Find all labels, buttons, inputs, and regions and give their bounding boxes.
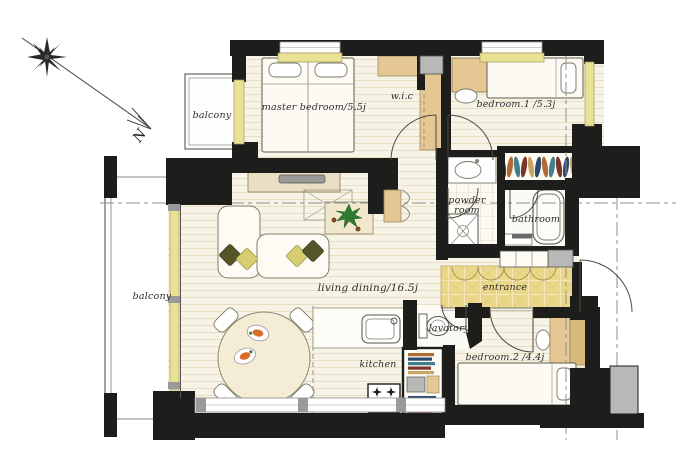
- floor-plan: N balcony balcony master bedroom/5.5j w.…: [0, 0, 676, 455]
- chair: [536, 330, 550, 350]
- compass-star: [27, 37, 67, 77]
- label-powder-room-2: room: [454, 205, 480, 216]
- label-living-dining: living dining/16.5j: [318, 282, 419, 294]
- bedroom1-furniture: [452, 58, 583, 103]
- label-bathroom: bathroom: [512, 214, 560, 225]
- window-sill: [278, 53, 342, 62]
- washbasin: [455, 162, 481, 179]
- dining-set: [212, 306, 316, 410]
- desk: [550, 315, 570, 365]
- label-balcony-left: balcony: [133, 291, 172, 302]
- desk: [452, 58, 490, 92]
- hall-cabinet: [500, 251, 548, 267]
- label-bedroom1: bedroom.1 /5.3j: [476, 99, 555, 110]
- compass: N: [22, 37, 151, 146]
- label-lavatory: lavatory: [429, 323, 470, 334]
- storage-pillar: [384, 190, 401, 222]
- pipe-shaft: [610, 366, 638, 414]
- sofa-chaise: [218, 206, 260, 278]
- window-sill: [480, 53, 544, 62]
- label-wic: w.i.c: [391, 91, 414, 102]
- label-kitchen: kitchen: [359, 359, 396, 370]
- chair: [455, 89, 477, 103]
- pillow: [315, 63, 347, 77]
- label-balcony-top: balcony: [193, 110, 232, 121]
- outside-area: [579, 198, 676, 310]
- pillow: [269, 63, 301, 77]
- north-label: N: [129, 126, 150, 147]
- label-bedroom2: bedroom.2 /4.4j: [465, 352, 544, 363]
- window-sill: [585, 62, 594, 126]
- label-entrance: entrance: [483, 282, 528, 293]
- window-sill: [234, 80, 244, 144]
- pillow: [557, 368, 571, 400]
- utility-box: [420, 56, 443, 74]
- tv: [279, 175, 325, 183]
- toilet-tank: [419, 314, 427, 338]
- floor-plan-drawing: N balcony balcony master bedroom/5.5j w.…: [0, 0, 676, 455]
- closet-hanging-clothes: [497, 152, 579, 182]
- dining-table: [218, 312, 310, 404]
- label-master-bedroom: master bedroom/5.5j: [262, 102, 366, 113]
- utility-box: [548, 250, 573, 267]
- pillow: [561, 63, 576, 93]
